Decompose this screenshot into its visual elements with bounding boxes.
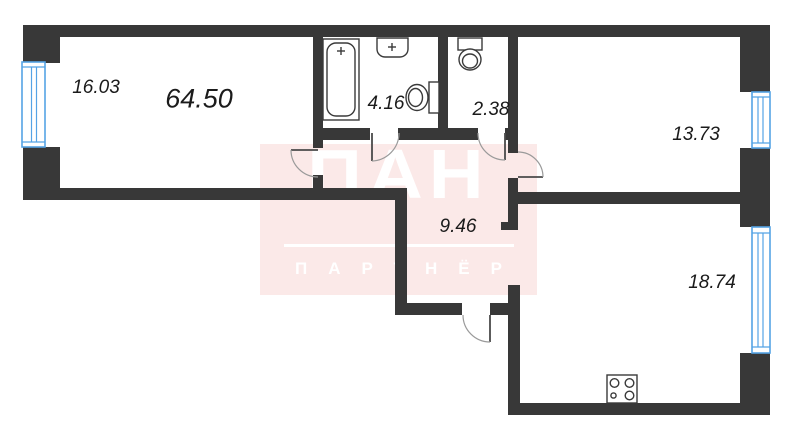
- door-living-room: [291, 150, 318, 177]
- window-bedroom: [752, 92, 770, 148]
- toilet-bathroom: [406, 82, 439, 113]
- wall-right-lower-block: [740, 353, 770, 407]
- wall-right-middle-block: [740, 148, 770, 227]
- wall-left-upper-block: [23, 37, 60, 63]
- stove: [607, 375, 637, 403]
- wall-toilet-bedroom-divider: [508, 37, 518, 153]
- door-bedroom: [518, 152, 543, 177]
- sink: [377, 38, 408, 57]
- door-toilet: [478, 133, 505, 160]
- door-swing-arc: [478, 133, 505, 160]
- wall-kitchen-west: [508, 285, 520, 407]
- label-hallway-area: 9.46: [440, 216, 477, 238]
- window-frame: [752, 92, 770, 148]
- door-bathroom: [372, 133, 399, 161]
- wall-top: [23, 25, 770, 37]
- door-entrance: [463, 315, 490, 342]
- wall-bedroom-south: [518, 192, 740, 204]
- door-swing-arc: [463, 315, 490, 342]
- door-swing-arc: [372, 133, 399, 161]
- door-swing-arc: [518, 152, 543, 177]
- label-toilet-area: 2.38: [473, 99, 510, 121]
- toilet-tank: [429, 82, 439, 113]
- plan-drawing: [0, 0, 800, 440]
- window-kitchen: [752, 227, 770, 353]
- label-bedroom-area: 13.73: [672, 124, 720, 146]
- wall-entrance-left: [407, 303, 462, 315]
- wall-living-bathroom-divider: [313, 37, 323, 148]
- floor-plan: ПАН ПАРТНЁР: [0, 0, 800, 440]
- label-bathroom-area: 4.16: [368, 93, 405, 115]
- wall-entrance-right: [490, 303, 508, 315]
- window-frame: [752, 227, 770, 353]
- label-kitchen-area: 18.74: [688, 272, 736, 294]
- door-swing-arc: [291, 150, 318, 177]
- wall-bathroom-south-a: [323, 128, 370, 140]
- bathtub: [323, 39, 359, 120]
- wall-hallway-west: [395, 200, 407, 315]
- wall-bottom-left: [23, 188, 407, 200]
- toilet-wc: [458, 38, 482, 70]
- wall-hallway-east: [508, 178, 518, 230]
- label-living-room-area: 16.03: [72, 77, 120, 99]
- wall-kitchen-south: [508, 403, 770, 415]
- label-total-area: 64.50: [165, 84, 233, 115]
- wall-toilet-south: [448, 128, 478, 140]
- window-frame: [22, 62, 45, 147]
- walls: [23, 25, 770, 415]
- wall-bathroom-south-b: [398, 128, 438, 140]
- wall-hallway-east-foot: [501, 222, 508, 230]
- toilet-tank: [458, 38, 482, 50]
- window-living-room: [22, 62, 45, 147]
- wall-right-upper-block: [740, 37, 770, 92]
